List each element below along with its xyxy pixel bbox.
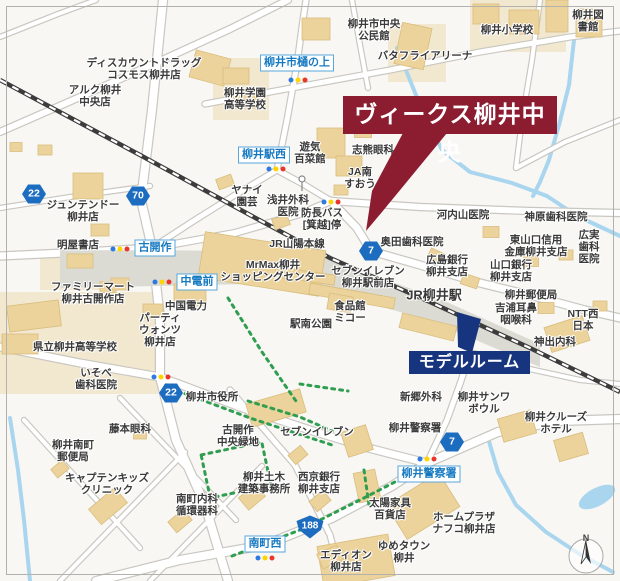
property-banner: ヴィークス柳井中央	[343, 96, 557, 134]
model-room-banner: モデルルーム	[409, 351, 530, 374]
compass-north-label: N	[583, 533, 590, 543]
compass-icon	[569, 539, 603, 573]
base-map-svg	[0, 0, 620, 581]
bus-pole-icon	[299, 176, 305, 182]
map-canvas: 柳井市中央 公民館バタフライアリーナ柳井小学校柳井図書館ディスカウントドラッグ …	[0, 0, 620, 581]
